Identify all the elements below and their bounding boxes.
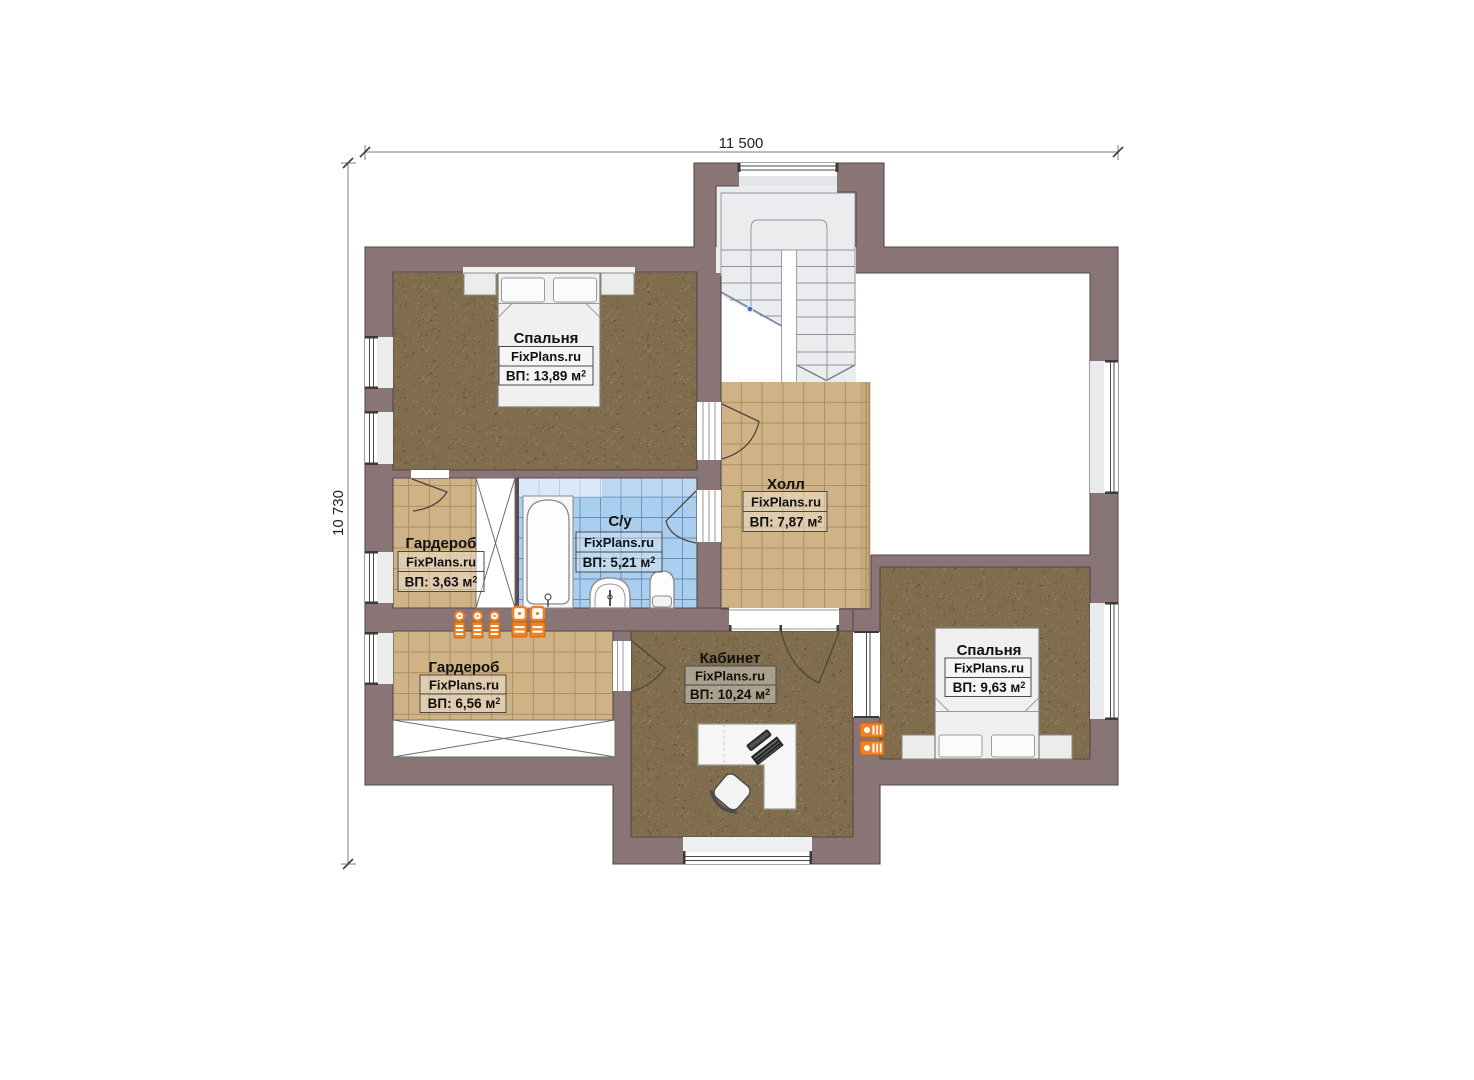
svg-text:Гардероб: Гардероб [429,659,500,676]
svg-text:ВП: 6,56 м2: ВП: 6,56 м2 [428,696,501,711]
svg-text:ВП: 13,89 м2: ВП: 13,89 м2 [506,369,586,384]
svg-text:ВП: 9,63 м2: ВП: 9,63 м2 [953,680,1026,695]
svg-text:Спальня: Спальня [957,642,1022,659]
svg-text:10 730: 10 730 [330,490,347,536]
svg-text:Кабинет: Кабинет [700,650,761,667]
svg-text:Холл: Холл [767,476,805,493]
svg-text:Гардероб: Гардероб [406,535,477,552]
svg-text:Спальня: Спальня [514,330,579,347]
svg-text:FixPlans.ru: FixPlans.ru [751,495,821,510]
svg-text:FixPlans.ru: FixPlans.ru [584,535,654,550]
svg-text:ВП: 7,87 м2: ВП: 7,87 м2 [750,515,823,530]
svg-text:ВП: 5,21 м2: ВП: 5,21 м2 [583,555,656,570]
svg-text:FixPlans.ru: FixPlans.ru [954,661,1024,676]
svg-text:ВП: 10,24 м2: ВП: 10,24 м2 [690,687,770,702]
svg-text:FixPlans.ru: FixPlans.ru [429,678,499,693]
svg-text:ВП: 3,63 м2: ВП: 3,63 м2 [405,575,478,590]
svg-text:С/у: С/у [608,513,632,530]
svg-text:FixPlans.ru: FixPlans.ru [406,555,476,570]
svg-text:FixPlans.ru: FixPlans.ru [695,669,765,684]
svg-text:FixPlans.ru: FixPlans.ru [511,349,581,364]
svg-text:11 500: 11 500 [719,135,764,152]
